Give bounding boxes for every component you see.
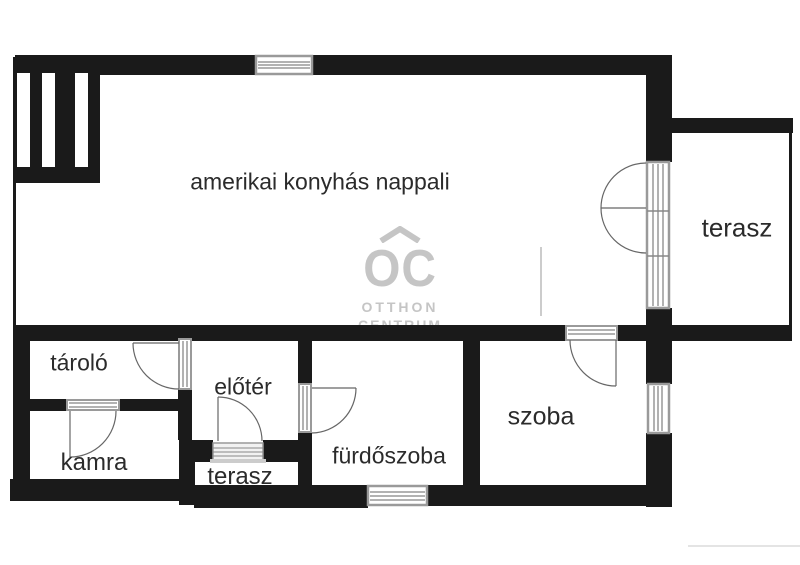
terrace-double-door bbox=[601, 163, 646, 253]
tarolo-door bbox=[133, 343, 179, 389]
floor-plan-drawing bbox=[0, 0, 800, 565]
room-label-terasz-bottom: terasz bbox=[207, 463, 272, 491]
kamra-door-frame bbox=[67, 400, 119, 410]
szoba-door-frame bbox=[566, 326, 617, 340]
furdoszoba-door-frame bbox=[299, 384, 311, 432]
room-label-tarolo: tároló bbox=[50, 350, 108, 377]
entrance-door bbox=[218, 397, 262, 441]
room-label-kamra: kamra bbox=[61, 449, 128, 477]
room-label-szoba: szoba bbox=[508, 403, 575, 432]
szoba-door bbox=[570, 340, 616, 386]
top-window bbox=[256, 56, 312, 74]
built-in-closet-bars bbox=[15, 73, 100, 183]
furdoszoba-bottom-window bbox=[368, 486, 427, 505]
walls bbox=[10, 55, 793, 508]
windows bbox=[67, 56, 669, 505]
furdoszoba-door bbox=[312, 388, 356, 433]
room-label-eloter: előtér bbox=[214, 374, 272, 401]
main-right-window bbox=[647, 162, 669, 308]
floor-plan-page: OC OTTHON CENTRUM bbox=[0, 0, 800, 565]
room-label-furdoszoba: fürdőszoba bbox=[332, 443, 446, 470]
room-label-nappali: amerikai konyhás nappali bbox=[190, 169, 450, 196]
szoba-right-window bbox=[648, 384, 669, 433]
entrance-steps bbox=[210, 443, 266, 463]
tarolo-door-frame bbox=[179, 339, 191, 389]
room-label-terasz-right: terasz bbox=[702, 213, 773, 244]
